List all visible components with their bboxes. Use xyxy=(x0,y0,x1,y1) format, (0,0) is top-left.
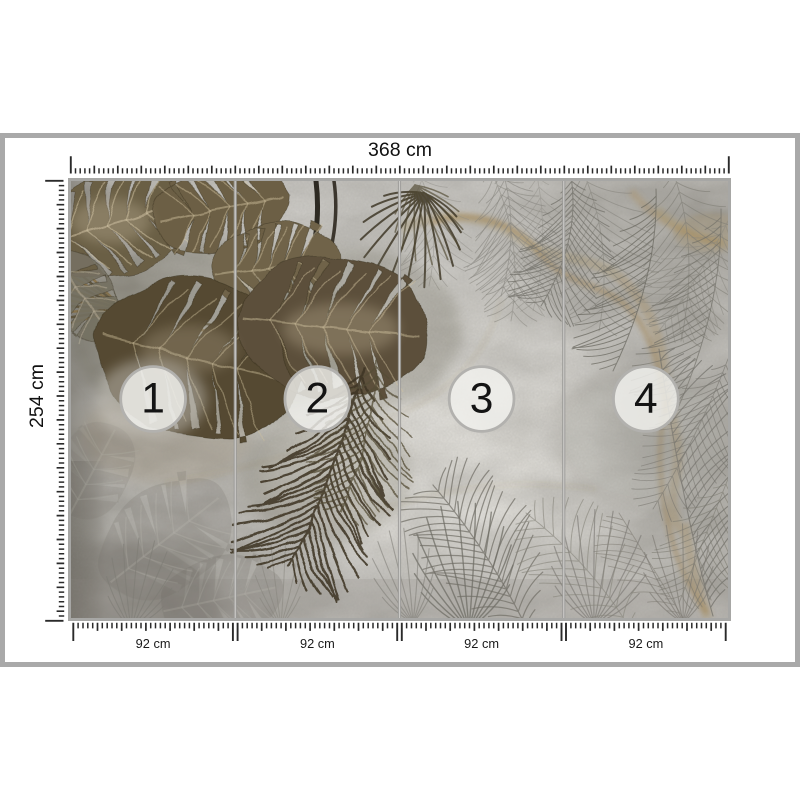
svg-text:3: 3 xyxy=(470,376,494,423)
svg-text:254 cm: 254 cm xyxy=(26,364,48,428)
svg-text:1: 1 xyxy=(141,376,165,423)
svg-text:92 cm: 92 cm xyxy=(136,636,171,651)
svg-text:92 cm: 92 cm xyxy=(300,636,335,651)
svg-text:4: 4 xyxy=(634,376,658,423)
svg-text:92 cm: 92 cm xyxy=(628,636,663,651)
svg-text:2: 2 xyxy=(306,376,330,423)
svg-text:368 cm: 368 cm xyxy=(368,139,432,161)
svg-text:92 cm: 92 cm xyxy=(464,636,499,651)
